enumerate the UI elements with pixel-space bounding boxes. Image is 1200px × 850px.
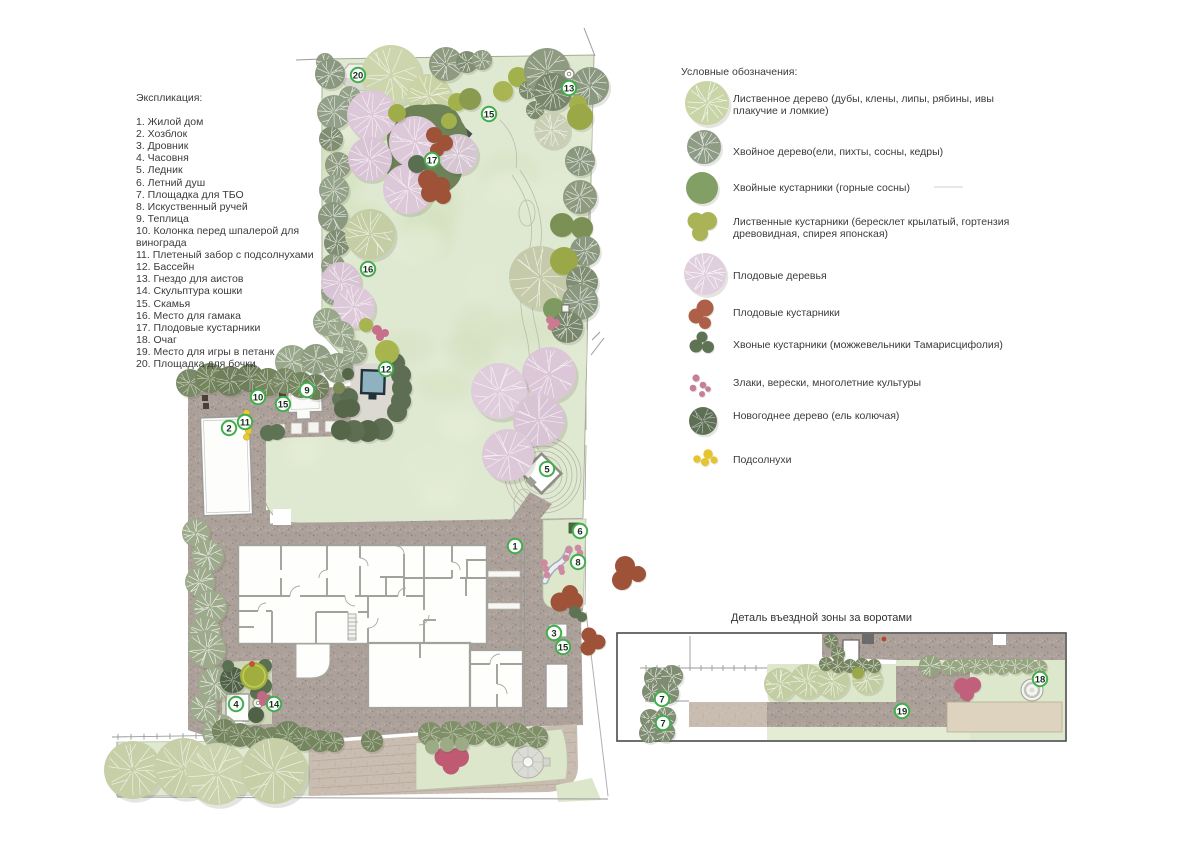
svg-text:1: 1 [512,541,518,552]
svg-text:8: 8 [575,557,580,568]
svg-text:15: 15 [558,642,569,653]
svg-text:5: 5 [544,464,550,475]
svg-text:3: 3 [551,628,556,639]
svg-text:15: 15 [278,399,289,410]
svg-text:4: 4 [233,699,239,710]
svg-text:12: 12 [381,364,392,375]
svg-text:10: 10 [253,392,264,403]
svg-text:7: 7 [659,694,664,705]
svg-text:20: 20 [353,70,364,81]
svg-text:14: 14 [269,699,280,710]
svg-text:2: 2 [226,423,231,434]
svg-text:15: 15 [484,109,495,120]
svg-text:19: 19 [897,706,908,717]
svg-text:18: 18 [1035,674,1046,685]
svg-text:6: 6 [577,526,582,537]
svg-text:11: 11 [240,417,251,428]
svg-text:9: 9 [304,385,309,396]
svg-text:7: 7 [660,718,665,729]
svg-text:16: 16 [363,264,374,275]
svg-text:17: 17 [427,155,438,166]
svg-text:13: 13 [564,83,575,94]
